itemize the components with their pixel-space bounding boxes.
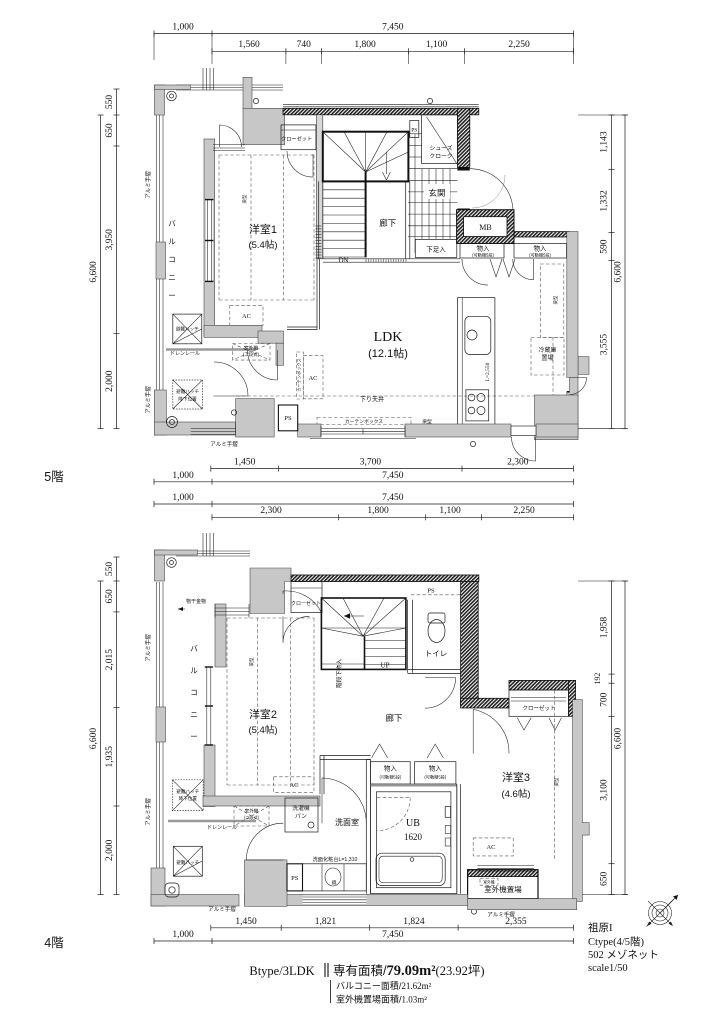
svg-text:洗面化粧台L=1,310: 洗面化粧台L=1,310: [313, 855, 358, 863]
svg-text:(可動棚5段): (可動棚5段): [424, 774, 446, 781]
svg-text:トイレ: トイレ: [425, 649, 448, 658]
svg-text:DN: DN: [338, 257, 348, 265]
svg-text:物入: 物入: [534, 244, 548, 253]
svg-text:1620: 1620: [404, 832, 423, 842]
svg-text:ー: ー: [190, 732, 198, 741]
svg-text:(二段式): (二段式): [244, 814, 260, 821]
svg-text:ドレンレール: ドレンレール: [207, 825, 237, 831]
svg-text:下足入: 下足入: [426, 246, 446, 254]
svg-text:梁型: 梁型: [553, 777, 560, 786]
svg-text:室外機置場: 室外機置場: [484, 884, 522, 894]
svg-text:L=2,550: L=2,550: [485, 362, 491, 381]
svg-text:物干金物: 物干金物: [186, 598, 206, 605]
svg-text:PS: PS: [427, 588, 435, 595]
svg-text:クローゼット: クローゼット: [281, 135, 312, 143]
svg-text:室外機: 室外機: [245, 808, 259, 815]
svg-text:バ: バ: [168, 219, 176, 228]
svg-text:コ: コ: [168, 255, 176, 264]
svg-text:避難ハッチ: 避難ハッチ: [176, 326, 199, 333]
svg-text:1,935: 1,935: [105, 746, 115, 768]
svg-text:1,560: 1,560: [238, 40, 260, 50]
svg-text:4階: 4階: [44, 935, 64, 950]
svg-text:アルミ手摺: アルミ手摺: [144, 386, 152, 414]
svg-text:クローゼット: クローゼット: [291, 600, 321, 607]
svg-text:梁型: 梁型: [248, 657, 255, 666]
svg-text:1,143: 1,143: [600, 131, 610, 153]
svg-text:UP: UP: [381, 662, 390, 670]
svg-text:7,450: 7,450: [382, 493, 404, 503]
svg-text:置場: 置場: [541, 354, 553, 362]
svg-text:ル: ル: [190, 666, 198, 675]
svg-text:洗濯機: 洗濯機: [292, 804, 310, 812]
svg-text:洋室1: 洋室1: [249, 222, 277, 236]
svg-text:(4.6帖): (4.6帖): [501, 788, 530, 800]
svg-text:502 メゾネット: 502 メゾネット: [588, 949, 659, 961]
svg-text:AC: AC: [242, 313, 251, 320]
svg-text:アルミ手摺: アルミ手摺: [144, 634, 152, 662]
svg-text:廊下: 廊下: [379, 218, 397, 228]
svg-text:梁型: 梁型: [241, 194, 248, 203]
svg-text:カーテンボックス: カーテンボックス: [296, 358, 303, 391]
svg-text:Ctype(4/5階): Ctype(4/5階): [588, 936, 645, 948]
svg-text:鏡: 鏡: [332, 879, 337, 886]
svg-text:洋室3: 洋室3: [502, 770, 530, 784]
svg-text:MB: MB: [479, 223, 491, 232]
svg-text:シューズ: シューズ: [430, 144, 453, 152]
svg-text:(12.1帖): (12.1帖): [368, 347, 408, 360]
svg-text:6,600: 6,600: [89, 261, 99, 283]
svg-text:アルミ手摺: アルミ手摺: [487, 911, 515, 919]
svg-text:クローク: クローク: [429, 153, 452, 160]
svg-text:降下位置: 降下位置: [178, 396, 197, 403]
svg-text:1,821: 1,821: [315, 917, 337, 927]
svg-text:ニ: ニ: [190, 710, 198, 719]
svg-text:物入: 物入: [477, 244, 491, 253]
svg-text:1,800: 1,800: [354, 40, 376, 50]
svg-text:アルミ手摺: アルミ手摺: [144, 798, 152, 826]
svg-text:アルミ手摺: アルミ手摺: [210, 440, 238, 448]
svg-text:1,100: 1,100: [426, 40, 448, 50]
svg-text:室外機: 室外機: [244, 345, 259, 352]
svg-text:1,000: 1,000: [172, 493, 194, 503]
svg-text:scale1/50: scale1/50: [588, 963, 628, 974]
svg-text:1,800: 1,800: [367, 506, 389, 516]
svg-text:6,600: 6,600: [614, 261, 624, 283]
svg-text:物入: 物入: [384, 764, 398, 773]
svg-text:1,000: 1,000: [172, 471, 194, 481]
svg-text:7,450: 7,450: [382, 471, 404, 481]
svg-text:クローゼット: クローゼット: [522, 704, 555, 712]
svg-text:2,000: 2,000: [105, 370, 115, 392]
svg-text:(5.4帖): (5.4帖): [248, 239, 277, 251]
svg-text:降下位置: 降下位置: [179, 795, 198, 802]
svg-text:ー: ー: [168, 291, 176, 300]
svg-text:2,250: 2,250: [508, 40, 530, 50]
svg-text:バルコニー面積/21.62m²: バルコニー面積/21.62m²: [336, 980, 432, 991]
svg-text:192: 192: [593, 673, 602, 685]
svg-text:PS: PS: [291, 875, 299, 882]
svg-text:550: 550: [105, 562, 115, 577]
svg-text:下り天井: 下り天井: [360, 396, 384, 404]
svg-text:玄関: 玄関: [428, 188, 445, 198]
svg-text:700: 700: [600, 692, 610, 707]
svg-text:(可動棚5段): (可動棚5段): [379, 774, 401, 781]
svg-text:3,555: 3,555: [600, 334, 610, 356]
svg-text:AC: AC: [308, 375, 317, 382]
svg-text:AC: AC: [486, 844, 495, 851]
svg-text:アルミ手摺: アルミ手摺: [208, 905, 236, 913]
svg-text:1,958: 1,958: [600, 617, 610, 639]
svg-text:避難ハッチ: 避難ハッチ: [176, 788, 199, 795]
svg-text:PS: PS: [411, 128, 417, 134]
svg-text:1,450: 1,450: [234, 458, 256, 468]
svg-text:パン: パン: [295, 813, 307, 820]
svg-text:6,600: 6,600: [89, 728, 99, 750]
svg-text:5階: 5階: [44, 469, 64, 484]
svg-text:避難ハッチ: 避難ハッチ: [176, 388, 199, 395]
svg-text:1,450: 1,450: [235, 917, 257, 927]
svg-text:アルミ手摺: アルミ手摺: [144, 171, 152, 199]
svg-text:3,700: 3,700: [360, 458, 382, 468]
svg-text:物入: 物入: [429, 764, 443, 773]
svg-text:7,450: 7,450: [382, 930, 404, 940]
svg-text:祖原I: 祖原I: [588, 921, 613, 934]
svg-text:3,100: 3,100: [600, 779, 610, 801]
svg-text:(5.4帖): (5.4帖): [248, 724, 277, 736]
svg-text:1,100: 1,100: [439, 506, 461, 516]
svg-text:Btype/3LDK: Btype/3LDK: [249, 964, 314, 978]
svg-text:コ: コ: [190, 688, 198, 697]
svg-text:AC: AC: [289, 782, 298, 789]
svg-text:2,015: 2,015: [105, 649, 115, 671]
svg-text:550: 550: [105, 95, 115, 110]
svg-text:7,450: 7,450: [382, 23, 404, 33]
svg-text:PS: PS: [284, 415, 292, 422]
svg-text:650: 650: [105, 123, 115, 138]
svg-text:2,300: 2,300: [260, 506, 282, 516]
svg-text:ドレンレール: ドレンレール: [170, 351, 200, 357]
svg-text:冷蔵庫: 冷蔵庫: [538, 346, 556, 354]
svg-text:1,332: 1,332: [600, 190, 610, 212]
svg-text:1,824: 1,824: [403, 917, 425, 927]
svg-text:ニ: ニ: [168, 273, 176, 282]
svg-text:専有面積/79.09m²(23.92坪): 専有面積/79.09m²(23.92坪): [333, 963, 485, 979]
svg-text:590: 590: [600, 239, 610, 254]
svg-text:LDK: LDK: [374, 330, 403, 345]
svg-text:階段下物入: 階段下物入: [335, 659, 343, 688]
svg-text:1,000: 1,000: [172, 930, 194, 940]
svg-text:洗面室: 洗面室: [335, 817, 359, 827]
svg-text:(可動棚5段): (可動棚5段): [529, 252, 551, 259]
svg-text:650: 650: [105, 589, 115, 604]
svg-text:カーテンボックス: カーテンボックス: [345, 418, 383, 425]
svg-text:6,600: 6,600: [614, 728, 624, 750]
svg-text:740: 740: [297, 40, 312, 50]
svg-text:ル: ル: [168, 237, 176, 246]
svg-text:廊下: 廊下: [385, 713, 403, 723]
svg-text:洋室2: 洋室2: [249, 707, 277, 721]
svg-text:UB: UB: [406, 818, 420, 829]
svg-text:2,250: 2,250: [513, 506, 535, 516]
svg-text:室外機置場面積/1.03m²: 室外機置場面積/1.03m²: [336, 994, 427, 1005]
svg-text:1,000: 1,000: [172, 23, 194, 33]
svg-text:2,000: 2,000: [105, 839, 115, 861]
svg-text:3,950: 3,950: [105, 229, 115, 251]
svg-text:バ: バ: [190, 644, 198, 653]
svg-text:(二段式): (二段式): [243, 351, 260, 358]
svg-text:650: 650: [600, 872, 610, 887]
svg-text:室外機: 室外機: [483, 880, 495, 885]
svg-text:避難ハッチ: 避難ハッチ: [176, 859, 199, 866]
svg-text:(可動棚5段): (可動棚5段): [472, 252, 494, 259]
svg-text:梁型: 梁型: [552, 295, 559, 304]
